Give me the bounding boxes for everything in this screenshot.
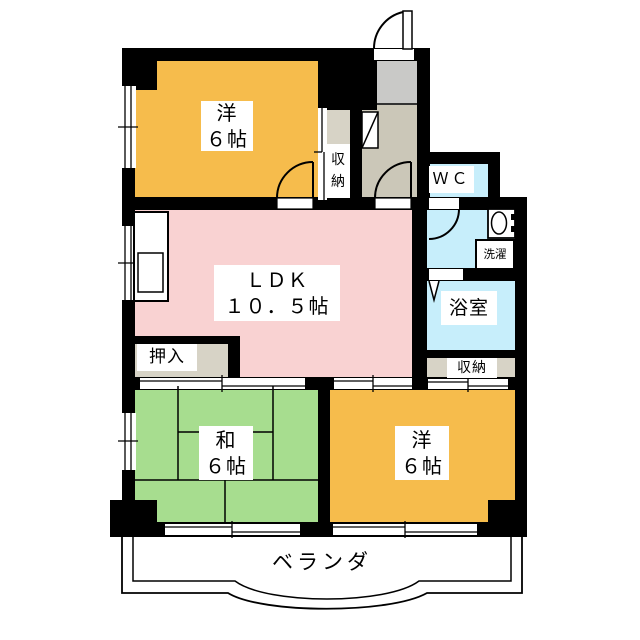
label-laundry: 洗濯: [477, 243, 513, 265]
window-japanese-room: [118, 413, 138, 470]
front-door: [374, 11, 412, 49]
room-label-storage-east: 収納: [447, 358, 497, 378]
room-label-bath: 浴室: [441, 291, 497, 325]
room-label-south-bedroom: 洋 ６帖: [395, 426, 449, 480]
room-label-west-bedroom: 洋 ６帖: [201, 101, 253, 151]
room-label-storage-north: 収 納: [326, 144, 350, 198]
room-label-wc: ＷＣ: [429, 166, 474, 193]
room-label-oshiire: 押入: [137, 344, 197, 371]
genkan-step-box: [362, 112, 378, 148]
genkan-porch: [377, 61, 417, 105]
front-door-opening: [374, 49, 414, 60]
bath-door-opening: [429, 269, 463, 280]
window-west-bedroom: [118, 86, 138, 168]
washbasin: [488, 209, 516, 238]
room-label-japanese: 和 ６帖: [199, 426, 253, 480]
wc-door-opening: [429, 198, 459, 209]
label-balcony: ベランダ: [252, 547, 392, 579]
room-label-ldk: ＬＤＫ １０．５帖: [214, 265, 340, 321]
front-door-leaf: [403, 11, 412, 49]
kitchen-sink: [138, 253, 163, 292]
floor-plan: 洋 ６帖 ＬＤＫ １０．５帖 和 ６帖 洋 ６帖 ＷＣ 浴室 洗濯 収納 収 納…: [0, 0, 640, 640]
